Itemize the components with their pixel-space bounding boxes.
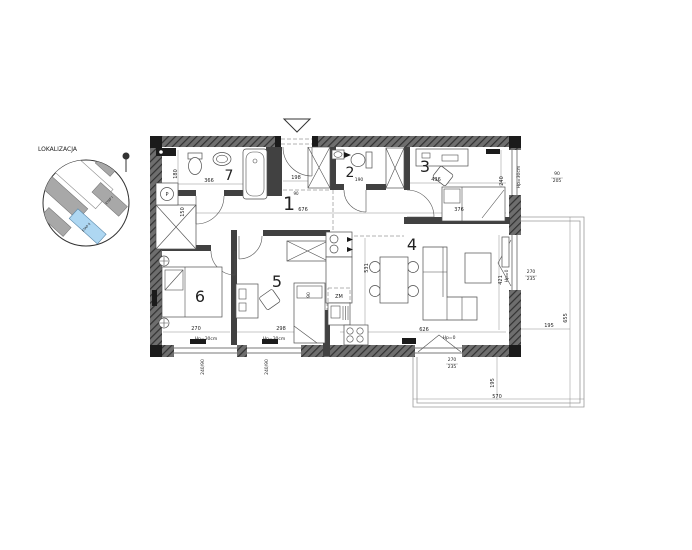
entrance-jamb — [275, 136, 281, 147]
dimension-label: 240/90 — [200, 359, 206, 375]
faucet-icon — [344, 152, 351, 158]
room-number-1: 1 — [283, 193, 295, 215]
bathroom-door — [196, 196, 224, 224]
dimension-label: 376 — [454, 207, 464, 213]
wc-door — [344, 190, 366, 212]
dimension-label: 90 — [293, 191, 299, 196]
location-title: LOKALIZACJA — [38, 146, 78, 153]
floor-plan-canvas: LOKALIZACJA — [0, 0, 692, 550]
corner-column — [150, 136, 162, 148]
room-number-7: 7 — [225, 168, 234, 184]
annotation-label: Hp=0 — [504, 269, 510, 282]
electrical-box — [156, 148, 176, 156]
duct-shaft — [156, 205, 196, 249]
dimension-label: 205 — [553, 178, 562, 184]
coffee-table — [465, 253, 491, 283]
dimension-label: 240 — [499, 176, 505, 186]
north-pin-icon — [123, 153, 130, 173]
chair — [432, 166, 453, 187]
radiator — [402, 338, 416, 344]
kitchen — [326, 232, 368, 345]
room-number-5: 5 — [272, 272, 282, 291]
stove — [344, 325, 368, 345]
corner-column — [150, 345, 162, 357]
bed-single — [442, 187, 505, 221]
dimension-label: 626 — [419, 327, 429, 333]
sink — [213, 153, 231, 166]
location-inset: LOKALIZACJA — [22, 146, 129, 246]
room6-furniture — [152, 256, 222, 328]
entrance-arrow-icon — [284, 119, 310, 132]
dimension-label: 676 — [298, 207, 308, 213]
wc-toilet — [366, 152, 372, 168]
dimension-label: 270 — [191, 326, 201, 332]
entrance-jamb — [312, 136, 318, 147]
dimension-label: 195 — [490, 378, 496, 388]
dimension-label: 235 — [448, 364, 457, 370]
corner-column — [509, 136, 521, 148]
dimension-label: 90 — [306, 292, 312, 298]
kitchen-sink-unit — [326, 232, 352, 257]
corner-column — [509, 345, 521, 357]
room4-furniture — [370, 237, 510, 344]
chair — [370, 262, 381, 273]
dimension-label: 366 — [204, 178, 214, 184]
window-bottom-mid — [247, 345, 301, 357]
room-number-3: 3 — [420, 157, 430, 176]
chair — [259, 289, 281, 310]
dimension-label: 235 — [527, 276, 536, 282]
bed-double — [162, 267, 222, 317]
room-number-4: 4 — [407, 235, 417, 254]
annotation-label: Hp=30cm — [263, 336, 286, 342]
dimension-label: 150 — [180, 207, 186, 217]
radiator — [152, 290, 157, 306]
wardrobe — [287, 241, 328, 261]
chair — [370, 286, 381, 297]
dimension-label: 180 — [173, 169, 179, 179]
dimension-label: 240/90 — [264, 359, 270, 375]
entrance-door — [281, 119, 312, 176]
dimension-label: 198 — [291, 175, 301, 181]
dimension-label: 195 — [544, 323, 554, 329]
dimension-label: 298 — [276, 326, 286, 332]
dimension-label: 436 — [431, 177, 441, 183]
annotation-label: Hp=30cm — [516, 166, 522, 189]
window-bottom-left — [174, 345, 237, 357]
duct-shaft — [386, 148, 404, 188]
dimension-label: 270 — [527, 269, 536, 275]
tv-unit — [502, 237, 509, 267]
dimension-label: 655 — [563, 313, 569, 323]
floor-plan-svg: LOKALIZACJA — [0, 0, 692, 550]
dimension-label: 570 — [492, 394, 502, 400]
dimension-label: 270 — [448, 357, 457, 363]
annotation-label: P — [165, 192, 168, 198]
dimension-label: 531 — [364, 263, 370, 273]
annotation-label: Hp=0 — [443, 335, 456, 341]
annotation-label: ZM — [335, 294, 343, 300]
radiator — [486, 149, 500, 154]
dimension-label: 421 — [498, 275, 504, 285]
duct-shaft — [308, 147, 330, 188]
room5-door — [239, 236, 262, 259]
dining-table — [380, 257, 408, 303]
chair — [408, 286, 419, 297]
chair — [408, 262, 419, 273]
room-number-2: 2 — [346, 165, 355, 181]
room-number-6: 6 — [195, 287, 205, 306]
dimension-label: 190 — [355, 177, 364, 183]
annotation-label: Hp=30cm — [195, 336, 218, 342]
bed-single — [294, 283, 325, 343]
dimension-label: 90 — [554, 171, 560, 177]
